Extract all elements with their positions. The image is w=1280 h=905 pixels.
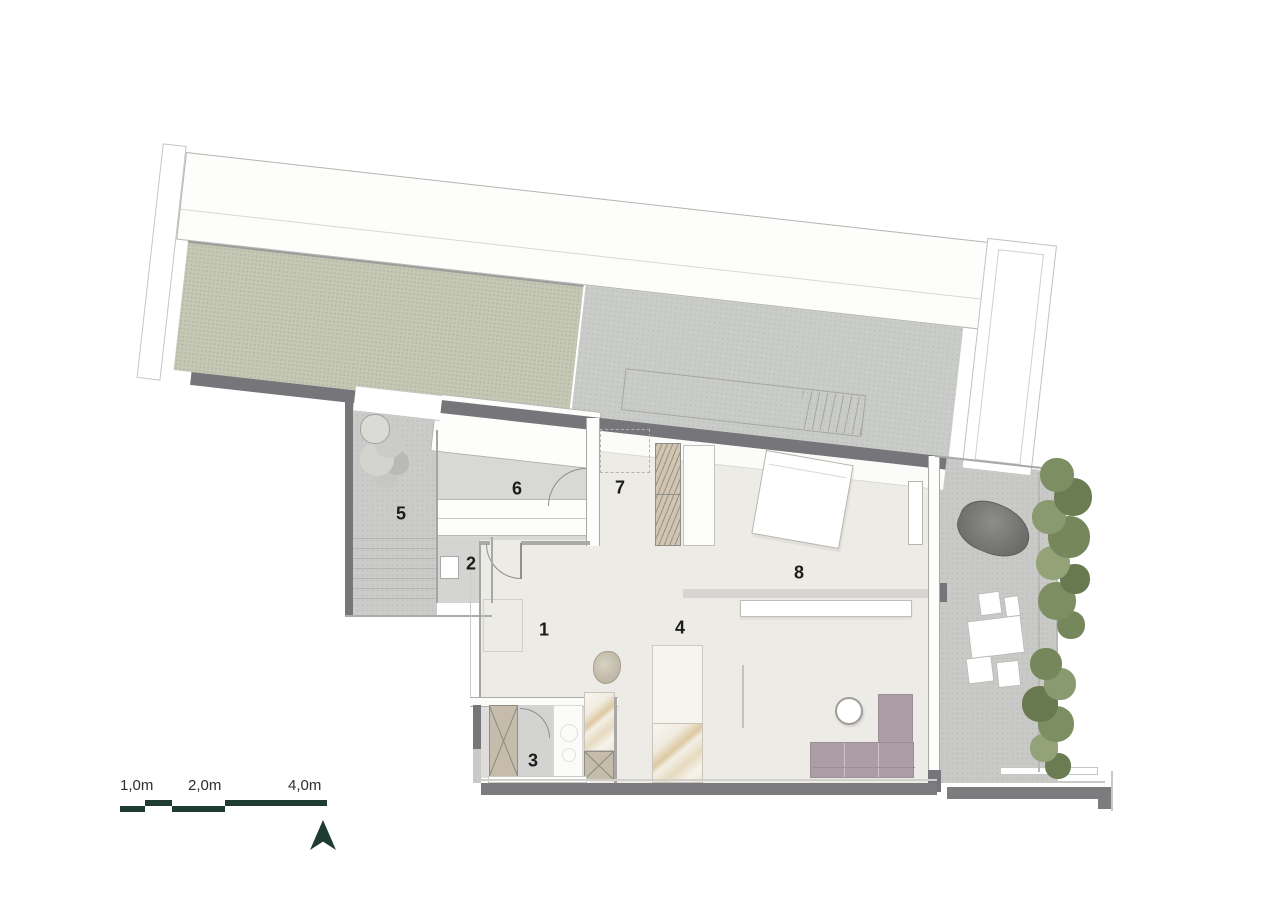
scale-segment-4 [225,800,327,806]
hedge-tree-north [1040,458,1074,492]
scale-bar: 1,0m 2,0m 4,0m [110,775,350,820]
scale-label-2m: 2,0m [188,777,221,794]
outdoor-chair-4 [996,660,1022,688]
room-label-7: 7 [615,478,625,499]
north-arrow-icon [310,820,336,850]
hedge-tree-south [1030,648,1062,680]
bathroom-east-wall [614,697,617,783]
bedside-bench [908,481,923,545]
scale-label-1m: 1,0m [120,777,153,794]
roof-skylight-hatch [799,390,866,435]
outdoor-chair-3 [966,656,995,685]
south-wall-line-west [481,779,937,781]
room-label-1: 1 [539,620,549,641]
planter-line-inner [1038,472,1040,772]
bathroom-west-wall-dark [473,705,481,749]
wardrobe-divider [656,494,680,495]
scale-segment-2 [145,800,172,806]
kitchen-island-top [652,645,703,725]
patio-steps [353,538,437,604]
scale-label-4m: 4,0m [288,777,321,794]
shaft-xbox-right [584,751,614,780]
room7-tall-panel [683,445,715,546]
room-label-3: 3 [528,751,538,772]
room1-west-wall [479,541,481,703]
scale-segment-3 [172,806,225,812]
kitchen-column-line [742,665,744,728]
room7-louvered-wardrobe [655,443,681,546]
south-wall-west [481,783,937,795]
scale-segment-1 [120,806,145,812]
wall-room8-room4 [683,589,933,598]
room-label-2: 2 [466,554,476,575]
room-label-4: 4 [675,618,685,639]
planter-line-outer [1056,474,1058,772]
bathroom-vanity [584,692,615,751]
sofa-seat-line [813,767,915,768]
shower-tray [553,705,583,777]
bathroom-west-wall-light [473,749,481,783]
bed [751,450,853,549]
south-wall-end-line [1111,771,1113,811]
shaft-xbox-left [489,705,518,777]
roof-group [149,152,1080,580]
entry-door-leaf [520,543,522,579]
shower-squiggle-1 [560,724,578,742]
floor-plan-canvas: 1 2 3 4 5 6 7 8 1,0m 2,0m 4,0m [0,0,1280,905]
room7-skylight-dashed [600,429,650,473]
outdoor-table [967,615,1025,659]
sofa-seam-2 [878,743,879,777]
sideboard-room4 [740,600,912,617]
outdoor-chair-1 [978,591,1003,617]
room6-sideboard-line [438,518,587,519]
wall-room6-room7 [586,418,600,546]
room-label-8: 8 [794,563,804,584]
south-wall-east [947,787,1105,799]
coffee-table [835,697,863,725]
room-label-6: 6 [512,479,522,500]
south-wall-step [1098,787,1112,809]
kitchen-island-marble [652,723,703,783]
wall-room8-terrace [928,456,940,788]
patio-tree [360,414,390,444]
room2-basin [440,556,459,579]
south-wall-line-east [947,781,1105,783]
room1-top-wall-b [521,541,590,545]
room-label-5: 5 [396,504,406,525]
shower-squiggle-2 [562,748,576,762]
wall-patio-room6 [436,430,438,603]
room1-closet-outline [483,599,523,652]
room2-east-wall [491,537,493,603]
sofa-horizontal [810,742,914,778]
sofa-seam-1 [844,743,845,777]
bed-pillow-line [769,464,847,479]
terrace-sill [1000,767,1098,775]
